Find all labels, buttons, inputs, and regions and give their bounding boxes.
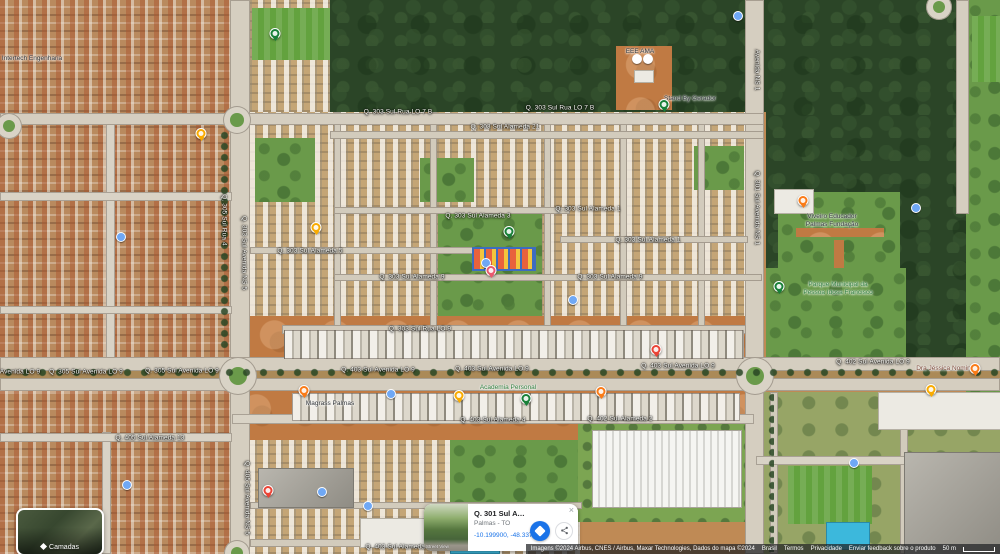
attribution-bar: Imagens ©2024 Airbus, CNES / Airbus, Max… <box>526 544 1000 554</box>
satellite-map[interactable]: Q. 303 Sul Rua LO 7 B Q. 303 Sul Rua LO … <box>0 0 1000 554</box>
poi-pin-orange-icon[interactable] <box>299 385 310 396</box>
layers-button[interactable]: Camadas <box>16 508 104 554</box>
privacy-link[interactable]: Privacidade <box>811 546 842 552</box>
road-label: Avenida LO 9 <box>0 369 40 376</box>
scale-text: 50 m <box>943 546 956 552</box>
sports-field <box>252 8 330 60</box>
place-coordinates[interactable]: -10.199900, -48.337056 <box>474 532 528 539</box>
road-label: Q. 405 Sul Alameda 13 <box>116 435 185 442</box>
road-label: Q. 403 Sul Alameda 4 <box>460 417 525 424</box>
poi-dot-icon[interactable] <box>911 203 921 213</box>
place-subtitle: Palmas - TO <box>474 520 528 527</box>
poi-dot-icon[interactable] <box>568 295 578 305</box>
road-label: Avenida NS 1 <box>754 50 761 91</box>
road-label: Q. 403 Sul Avenida LO 9 <box>341 367 415 374</box>
road-label: Q. 303 Sul Alameda 21 <box>471 124 540 131</box>
road-label: Q. 303 Sul Rua LO 7 B <box>526 105 595 112</box>
poi-label-stand-by-gerador[interactable]: Stand By Gerador <box>664 95 716 103</box>
poi-pin-yellow-icon[interactable] <box>196 128 207 139</box>
poi-pin-orange-icon[interactable] <box>798 195 809 206</box>
building-row <box>878 392 1000 430</box>
road <box>0 306 232 314</box>
road <box>620 112 627 358</box>
dirt-path <box>796 228 884 237</box>
road-label: Q. 305 Sul Rua 4 <box>221 194 228 245</box>
poi-dot-icon[interactable] <box>317 487 327 497</box>
poi-dot-icon[interactable] <box>849 458 859 468</box>
road <box>106 118 115 366</box>
road-label: Q. 402 Sul Alameda 2 <box>587 416 652 423</box>
road-label: Q. 305 Sul Avenida LO 9 <box>145 368 219 375</box>
soccer-pitch <box>788 466 872 524</box>
poi-pin-red-icon[interactable] <box>651 344 662 355</box>
poi-label-viveiro-line2[interactable]: Palmas Fundação <box>806 221 858 229</box>
poi-dot-icon[interactable] <box>386 389 396 399</box>
road-label: Q. 303 Sul Alameda 9 <box>379 274 444 281</box>
road-alameda-21 <box>330 131 764 139</box>
poi-pin-green-icon[interactable] <box>504 226 515 237</box>
country-link[interactable]: Brasil <box>762 546 777 552</box>
directions-button[interactable] <box>530 521 550 541</box>
road-label: Q. 403 Sul Avenida LO 9 <box>455 366 529 373</box>
street-view-label: Street View <box>426 544 449 549</box>
poi-dot-icon[interactable] <box>363 501 373 511</box>
imagery-credit: Imagens ©2024 Airbus, CNES / Airbus, Max… <box>531 546 755 552</box>
layers-button-label: Camadas <box>18 544 102 551</box>
poi-label-academia[interactable]: Academia Personal <box>480 384 536 392</box>
large-building <box>904 452 1000 554</box>
road-label: Q. 301 Sul Avenida NS 1 <box>754 171 761 245</box>
road-label: Q. 403 Sul Alameda 1 <box>365 544 430 551</box>
road-label: Q. 405 Sul Avenida NS 5 <box>244 461 251 535</box>
road-label: Q. 305 Sul Avenida LO 9 <box>49 369 123 376</box>
poi-pin-yellow-icon[interactable] <box>454 390 465 401</box>
poi-label-viveiro-line1[interactable]: Viveiro Educador <box>807 213 856 221</box>
poi-pin-green-icon[interactable] <box>774 281 785 292</box>
poi-pin-orange-icon[interactable] <box>596 386 607 397</box>
feedback-link[interactable]: Enviar feedback sobre o produto <box>849 546 936 552</box>
close-icon[interactable]: × <box>569 505 574 515</box>
poi-dot-icon[interactable] <box>733 11 743 21</box>
green-lot <box>420 158 474 202</box>
poi-label-intertech[interactable]: Intertech Engenharia <box>2 55 62 63</box>
place-card-body: Q. 301 Sul Avenida ... Palmas - TO -10.1… <box>468 504 530 551</box>
green-lot <box>255 138 315 202</box>
sports-field <box>972 16 1000 82</box>
road-label: Q. 303 Sul Alameda 9 <box>577 274 642 281</box>
roadside-trees <box>764 392 774 552</box>
green-lot <box>450 440 578 510</box>
road-label: Q. 303 Sul Alameda 3 <box>445 213 510 220</box>
road-label: Q. 303 Sul Avenida NS 5 <box>241 216 248 290</box>
poi-pin-green-icon[interactable] <box>521 393 532 404</box>
road-label: Q. 303 Sul Alameda 5 <box>277 248 342 255</box>
terms-link[interactable]: Termos <box>784 546 804 552</box>
road-label: Q. 303 Sul Alameda 1 <box>555 206 620 213</box>
poi-pin-green-icon[interactable] <box>659 99 670 110</box>
poi-pin-yellow-icon[interactable] <box>311 222 322 233</box>
poi-dot-icon[interactable] <box>122 480 132 490</box>
scale-bar <box>963 547 995 552</box>
poi-pin-green-icon[interactable] <box>270 28 281 39</box>
poi-dot-icon[interactable] <box>632 54 642 64</box>
place-title: Q. 301 Sul Avenida ... <box>474 509 528 518</box>
road-label: Q. 303 Sul Rua LO 7 B <box>364 109 433 116</box>
road-label: Q. 303 Sul Rua LO 9 <box>389 326 451 333</box>
poi-dot-icon[interactable] <box>116 232 126 242</box>
poi-pin-pink-icon[interactable] <box>486 265 497 276</box>
road-east <box>956 0 969 214</box>
poi-label-parque-line1[interactable]: Parque Municipal da <box>808 281 867 289</box>
warehouse-building <box>592 430 742 508</box>
poi-label-parque-line2[interactable]: Pessoa Idosa Francisco <box>803 289 872 297</box>
poi-label-magrass[interactable]: Magrass Palmas <box>306 400 354 408</box>
poi-pin-red-icon[interactable] <box>263 485 274 496</box>
street-view-thumbnail[interactable]: Street View <box>424 504 468 551</box>
road-label: Q. 403 Sul Avenida LO 9 <box>641 363 715 370</box>
share-button[interactable] <box>555 522 573 540</box>
layers-label-text: Camadas <box>49 544 79 551</box>
road <box>430 112 437 358</box>
road <box>334 112 341 358</box>
road <box>0 192 232 201</box>
poi-dot-icon[interactable] <box>643 54 653 64</box>
road-label: Q. 402 Sul Avenida LO 9 <box>836 359 910 366</box>
building <box>634 70 654 83</box>
road-label: Q. 303 Sul Alameda 1 <box>615 237 680 244</box>
road <box>698 112 705 358</box>
road <box>544 112 551 358</box>
poi-pin-yellow-icon[interactable] <box>926 384 937 395</box>
commercial-strip-north <box>284 330 744 359</box>
share-icon <box>560 526 569 535</box>
poi-pin-orange-icon[interactable] <box>970 363 981 374</box>
layers-diamond-icon <box>40 543 47 550</box>
